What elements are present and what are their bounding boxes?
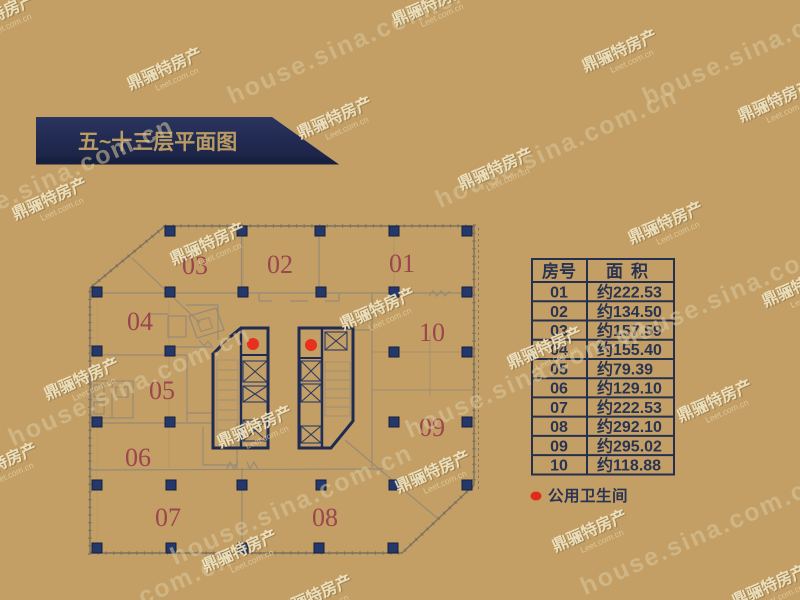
- svg-text:04: 04: [127, 307, 153, 336]
- svg-text:公用卫生间: 公用卫生间: [548, 486, 628, 505]
- svg-text:06: 06: [550, 381, 568, 398]
- svg-text:约118.88: 约118.88: [597, 456, 661, 475]
- svg-text:02: 02: [267, 250, 293, 279]
- svg-text:09: 09: [550, 438, 568, 455]
- svg-text:约295.02: 约295.02: [597, 436, 662, 455]
- svg-text:面积: 面积: [606, 262, 656, 281]
- svg-text:02: 02: [550, 304, 568, 321]
- svg-text:约292.10: 约292.10: [597, 417, 662, 436]
- svg-text:10: 10: [550, 458, 568, 475]
- svg-text:07: 07: [550, 400, 568, 417]
- svg-text:08: 08: [550, 419, 568, 436]
- svg-text:07: 07: [155, 503, 181, 532]
- svg-text:06: 06: [125, 443, 151, 472]
- svg-text:10: 10: [419, 318, 445, 347]
- svg-text:01: 01: [550, 285, 568, 302]
- svg-text:约222.53: 约222.53: [597, 398, 662, 417]
- svg-text:约79.39: 约79.39: [597, 360, 653, 379]
- svg-text:01: 01: [389, 249, 415, 278]
- svg-text:约222.53: 约222.53: [597, 283, 662, 302]
- svg-text:房号: 房号: [542, 261, 576, 281]
- svg-text:约129.10: 约129.10: [597, 379, 662, 398]
